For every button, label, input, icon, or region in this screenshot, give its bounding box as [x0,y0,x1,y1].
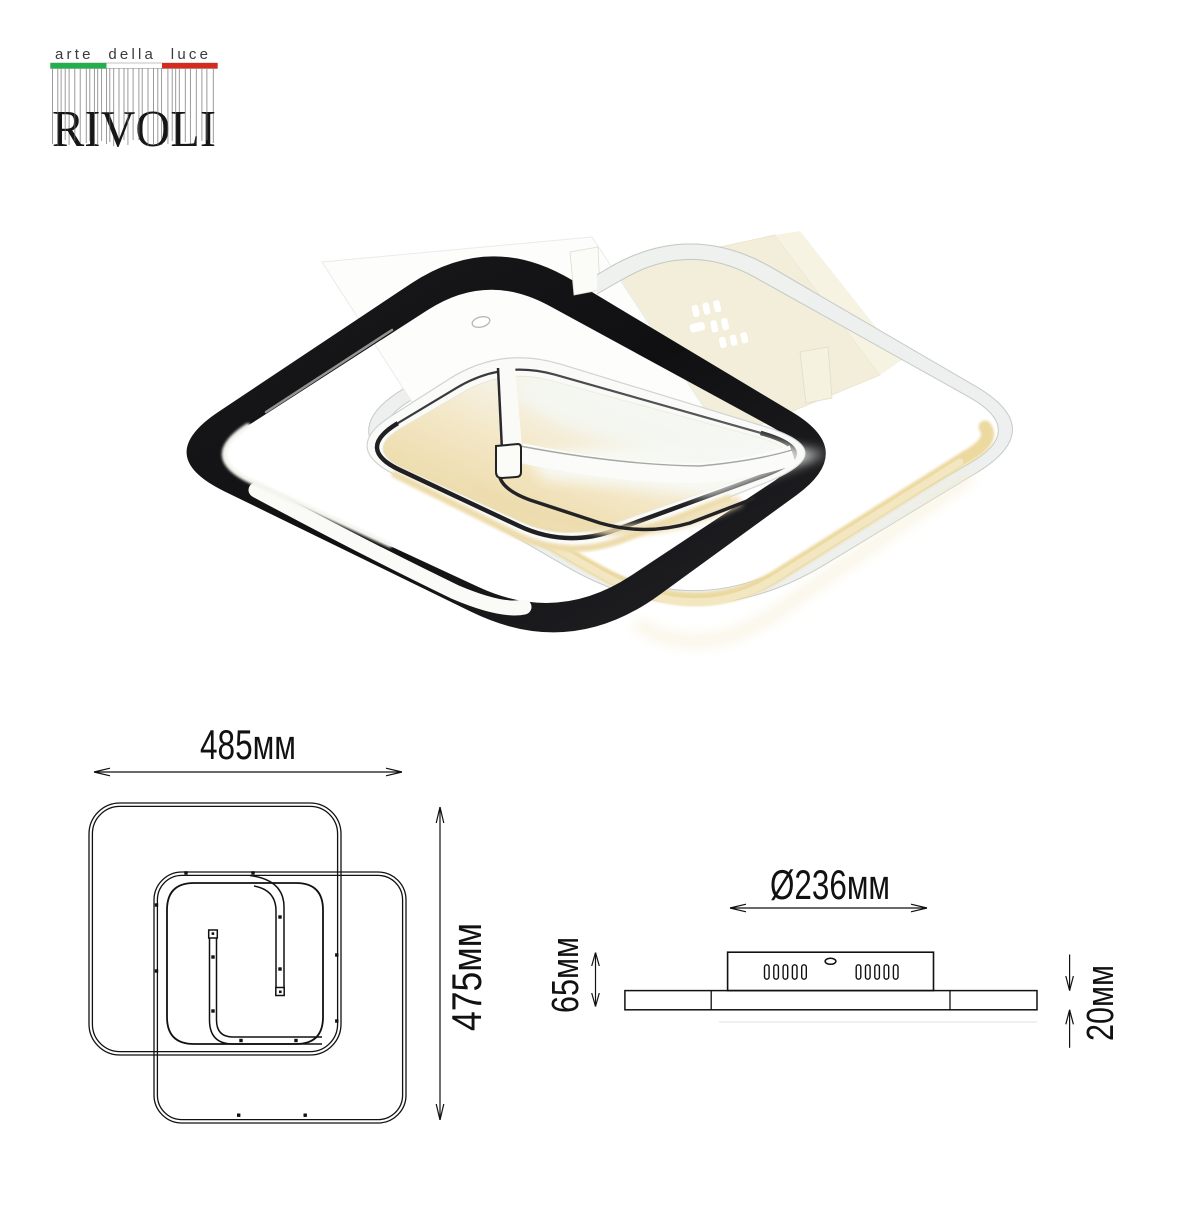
svg-text:65мм: 65мм [545,937,587,1013]
svg-text:485мм: 485мм [200,721,296,768]
svg-text:arte della luce: arte della luce [55,46,211,63]
svg-text:20мм: 20мм [1080,965,1122,1041]
svg-text:Ø236мм: Ø236мм [770,861,890,908]
svg-text:RIVOLI: RIVOLI [52,101,216,158]
svg-text:475мм: 475мм [443,923,490,1031]
